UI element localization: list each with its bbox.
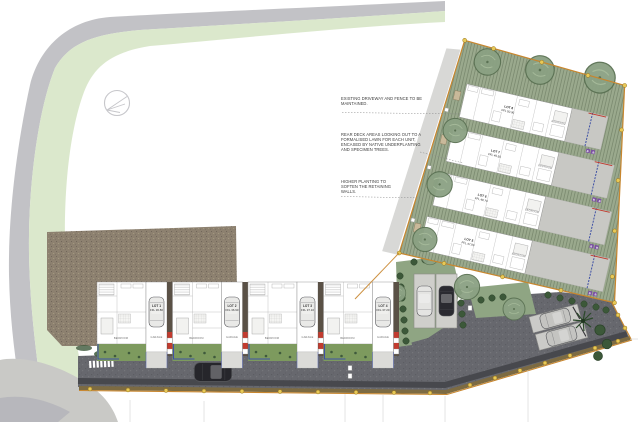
tree-icon bbox=[454, 274, 479, 299]
ffl-label: FFL 37.10 bbox=[301, 308, 314, 312]
annotation-line: WALLS. bbox=[341, 189, 356, 194]
sign-marker-icon bbox=[348, 366, 352, 371]
site-plan-canvas: LOT 1 FFL 36.80 BEDROOM GARAGE LOT 2 FFL… bbox=[0, 0, 638, 422]
unit-lot-1: LOT 1 FFL 36.80 BEDROOM GARAGE bbox=[97, 282, 173, 368]
room-label: BEDROOM bbox=[114, 337, 128, 340]
ffl-label: FFL 36.80 bbox=[150, 308, 163, 312]
north-arrow-icon bbox=[105, 91, 130, 116]
shrub-icon bbox=[594, 352, 603, 361]
car-icon bbox=[417, 286, 432, 316]
shrub-icon bbox=[595, 325, 605, 335]
unit-lot-3: LOT 3 FFL 37.10 BEDROOM GARAGE bbox=[248, 282, 324, 368]
room-label: BEDROOM bbox=[340, 337, 354, 340]
shrub-icon bbox=[602, 339, 612, 349]
annotation-line: MAINTAINED. bbox=[341, 101, 368, 106]
tree-icon bbox=[503, 298, 525, 320]
sign-marker-icon bbox=[348, 374, 352, 379]
ffl-label: FFL 36.90 bbox=[225, 308, 238, 312]
room-label: GARAGE bbox=[302, 336, 314, 339]
car-icon bbox=[439, 286, 454, 316]
room-label: BEDROOM bbox=[189, 337, 203, 340]
annotation-line: AND SPECIMEN TREES. bbox=[341, 147, 389, 152]
car-icon bbox=[149, 297, 164, 327]
unit-lot-2: LOT 2 FFL 36.90 BEDROOM GARAGE bbox=[173, 282, 249, 368]
car-icon bbox=[376, 297, 391, 327]
unit-lot-4: LOT 4 FFL 37.20 BEDROOM GARAGE bbox=[324, 282, 400, 368]
car-icon bbox=[225, 297, 240, 327]
bottom-terrace-row: LOT 1 FFL 36.80 BEDROOM GARAGE LOT 2 FFL… bbox=[97, 282, 399, 368]
room-label: BEDROOM bbox=[265, 337, 279, 340]
feather-shrub bbox=[76, 345, 92, 351]
ffl-label: FFL 37.20 bbox=[376, 308, 389, 312]
room-label: GARAGE bbox=[226, 336, 238, 339]
room-label: GARAGE bbox=[377, 336, 389, 339]
sign-marker-icon bbox=[468, 306, 472, 311]
site-plan-page: LOT 1 FFL 36.80 BEDROOM GARAGE LOT 2 FFL… bbox=[0, 0, 638, 422]
car-icon bbox=[300, 297, 315, 327]
room-label: GARAGE bbox=[151, 336, 163, 339]
